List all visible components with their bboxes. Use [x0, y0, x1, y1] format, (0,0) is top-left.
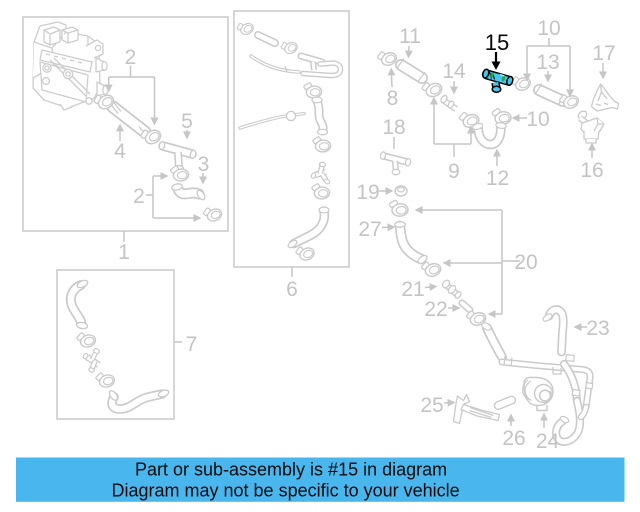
svg-text:27: 27	[358, 218, 381, 241]
svg-text:4: 4	[114, 140, 126, 163]
svg-text:3: 3	[198, 153, 210, 176]
svg-text:25: 25	[420, 394, 443, 417]
svg-text:26: 26	[502, 427, 525, 450]
svg-text:10: 10	[526, 108, 549, 131]
svg-text:23: 23	[586, 317, 609, 340]
svg-text:10: 10	[537, 17, 560, 40]
svg-text:21: 21	[401, 278, 424, 301]
svg-text:2: 2	[125, 46, 137, 69]
svg-text:5: 5	[181, 110, 193, 133]
svg-text:6: 6	[286, 278, 298, 301]
svg-text:Diagram may not be specific to: Diagram may not be specific to your vehi…	[112, 480, 460, 500]
svg-text:19: 19	[356, 181, 379, 204]
svg-text:24: 24	[536, 430, 560, 453]
svg-text:7: 7	[186, 333, 198, 356]
svg-text:15: 15	[485, 30, 509, 55]
svg-text:11: 11	[399, 25, 421, 48]
svg-text:Part or sub-assembly is #15 in: Part or sub-assembly is #15 in diagram	[135, 460, 447, 480]
svg-text:9: 9	[448, 160, 460, 183]
svg-text:13: 13	[536, 51, 559, 74]
svg-text:8: 8	[387, 87, 399, 110]
svg-text:2: 2	[133, 185, 145, 208]
svg-text:22: 22	[424, 298, 447, 321]
svg-text:16: 16	[580, 159, 603, 182]
svg-text:14: 14	[442, 60, 466, 83]
svg-text:1: 1	[118, 241, 130, 264]
svg-text:17: 17	[592, 42, 615, 65]
svg-text:18: 18	[382, 116, 405, 139]
svg-text:12: 12	[486, 167, 509, 190]
svg-text:20: 20	[514, 251, 537, 274]
